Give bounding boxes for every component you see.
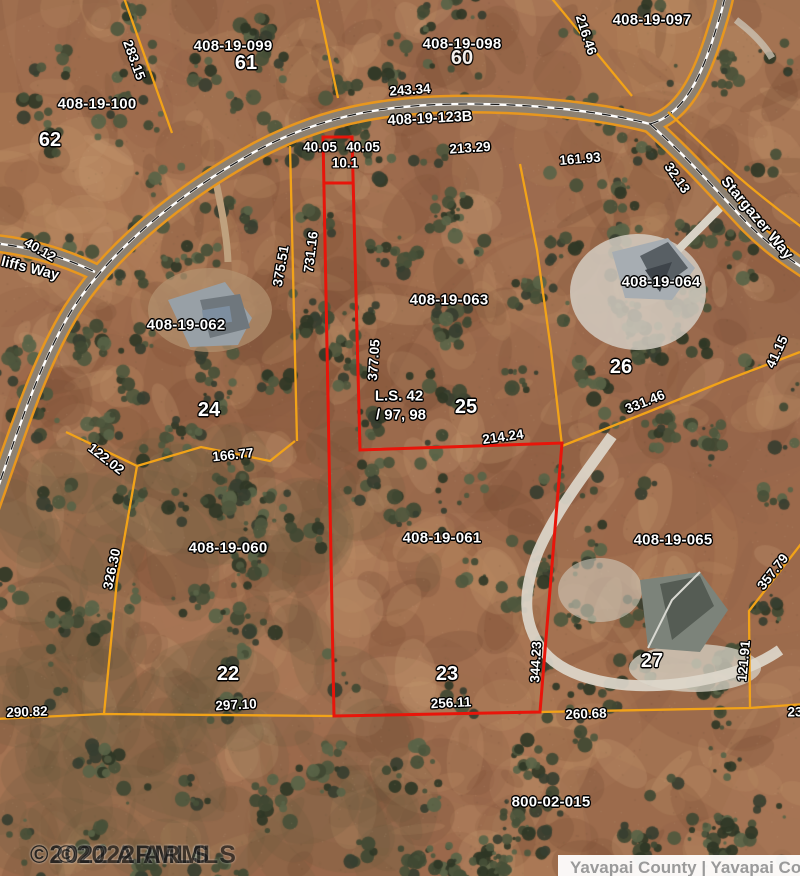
lot-number-25: 25 — [455, 397, 477, 417]
lot-number-22: 22 — [217, 664, 239, 684]
apn-label-408-19-061: 408-19-061 — [403, 531, 482, 546]
apn-label-408-19-062: 408-19-062 — [147, 318, 226, 333]
apn-label-408-19-100: 408-19-100 — [58, 97, 137, 112]
parcel-map-screenshot: 408-19-100 62 408-19-099 61 408-19-098 6… — [0, 0, 800, 876]
lot-number-60: 60 — [451, 48, 473, 68]
lot-number-61: 61 — [235, 53, 257, 73]
dimension-label: 10.1 — [332, 156, 358, 170]
lot-number-27: 27 — [641, 651, 663, 671]
lot-number-23: 23 — [436, 664, 458, 684]
parcel-line-099-098 — [316, 0, 338, 98]
survey-note-line1: L.S. 42 — [375, 389, 423, 404]
county-attribution-text: Yavapai County | Yavapai Count — [570, 858, 800, 876]
clearing-lot27-a — [558, 558, 642, 622]
map-overlay-svg — [0, 0, 800, 876]
apn-label-408-19-097: 408-19-097 — [613, 13, 692, 28]
parcel-line-25-26 — [520, 164, 562, 446]
dimension-label: 40.05 — [303, 140, 337, 154]
lot-number-24: 24 — [198, 400, 220, 420]
dimension-label: 377.05 — [366, 339, 382, 381]
armls-watermark-ghost: ©2022 ARMLS — [57, 841, 237, 870]
parcel-line-331 — [562, 352, 800, 446]
dimension-label: 260.68 — [565, 707, 607, 722]
dimension-label: 121.91 — [735, 640, 752, 682]
dimension-label-partial: 23 — [787, 705, 800, 719]
dimension-label: 256.11 — [430, 695, 471, 711]
dimension-label: 243.34 — [389, 82, 431, 98]
driveway-top-right — [736, 20, 772, 58]
lot-number-62: 62 — [39, 130, 61, 150]
survey-note-line2: / 97, 98 — [376, 408, 426, 423]
dimension-label: 290.82 — [6, 705, 48, 720]
apn-label-408-19-099: 408-19-099 — [194, 39, 273, 54]
parcel-line-326 — [104, 466, 137, 714]
apn-label-408-19-065: 408-19-065 — [634, 533, 713, 548]
dimension-label: 297.10 — [215, 697, 257, 713]
dimension-label: 161.93 — [559, 150, 601, 167]
parcel-line-bottom — [0, 704, 800, 719]
parcel-line-lot24-east — [290, 146, 297, 441]
dimension-label: 344.23 — [528, 641, 544, 683]
dimension-label: 213.29 — [449, 140, 491, 156]
apn-label-800-02-015: 800-02-015 — [512, 795, 591, 810]
dimension-label: 40.05 — [346, 140, 380, 154]
county-attribution-bar: Yavapai County | Yavapai Count — [558, 855, 800, 876]
driveway-lot26 — [676, 206, 722, 252]
lot-number-26: 26 — [610, 357, 632, 377]
apn-label-408-19-060: 408-19-060 — [189, 541, 268, 556]
apn-label-408-19-064: 408-19-064 — [622, 275, 701, 290]
apn-label-408-19-063: 408-19-063 — [410, 293, 489, 308]
